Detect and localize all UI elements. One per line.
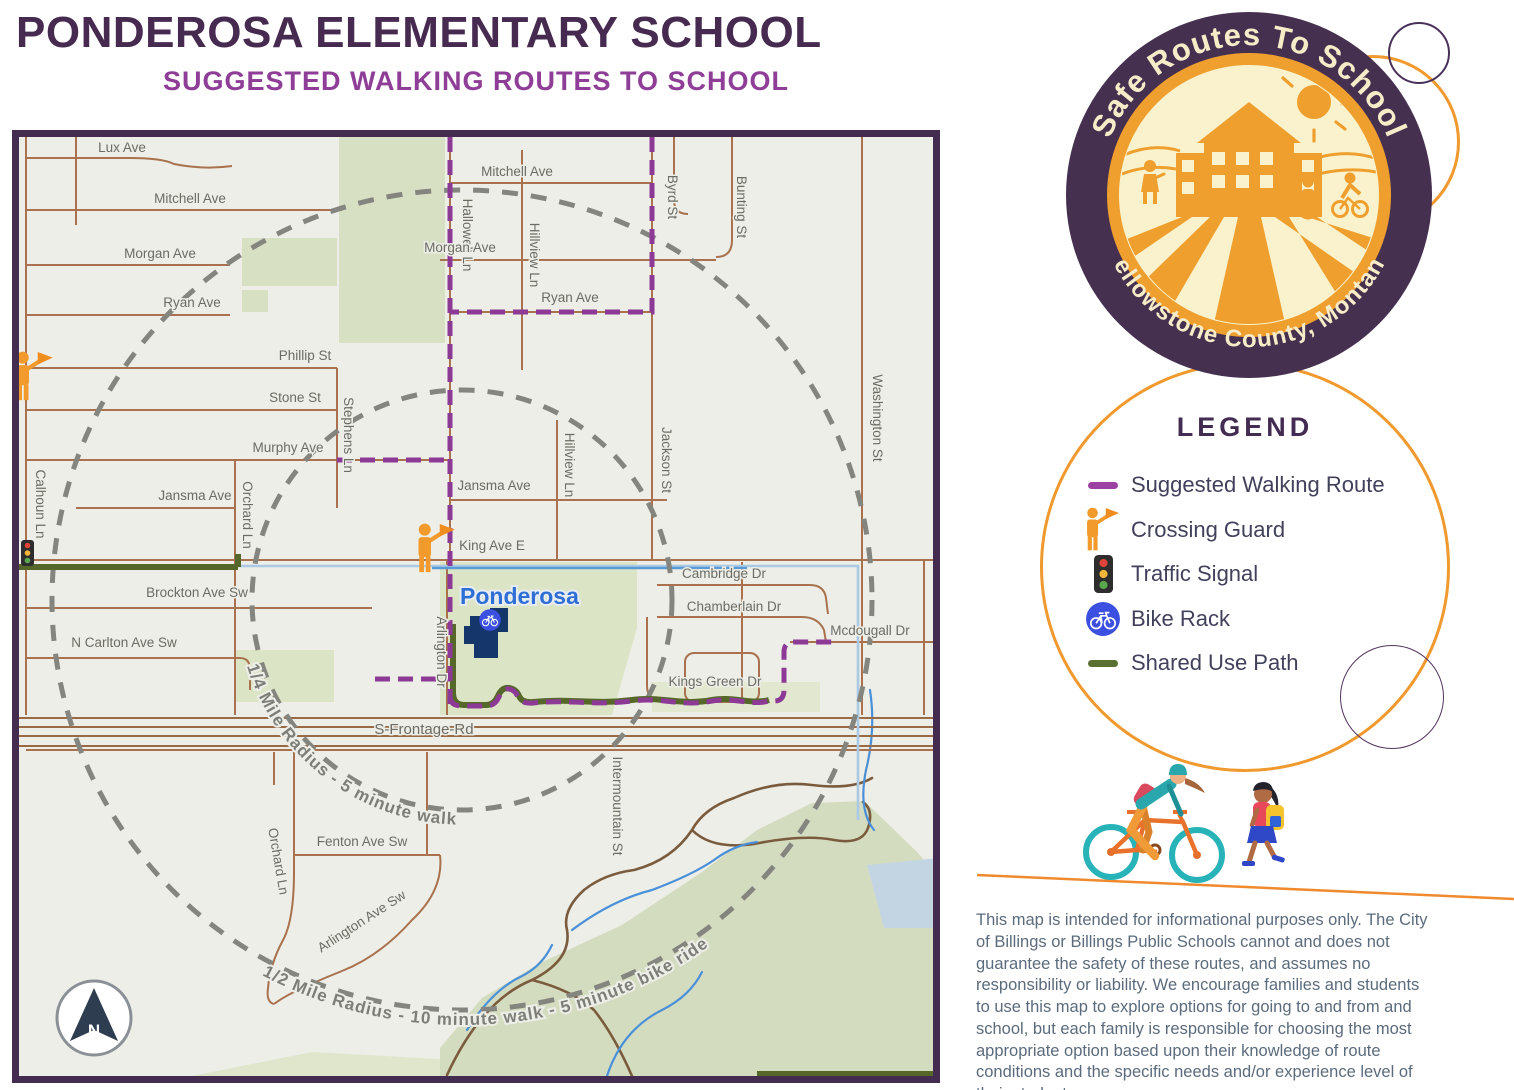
- street-label: Lux Ave: [98, 140, 146, 155]
- street-label: Fenton Ave Sw: [317, 834, 408, 849]
- street-label: Jansma Ave: [158, 488, 231, 503]
- street-label: Stephens Ln: [341, 397, 356, 473]
- legend-row-bike-rack: Bike Rack: [1075, 597, 1415, 642]
- street-label: N Carlton Ave Sw: [71, 635, 177, 650]
- svg-text:N: N: [88, 1021, 100, 1040]
- street-label: King Ave E: [459, 538, 525, 553]
- street-label: Chamberlain Dr: [687, 599, 782, 614]
- crossing-guard-icon: [1084, 508, 1122, 552]
- traffic-signal-icon: [21, 540, 34, 566]
- page-title: PONDEROSA ELEMENTARY SCHOOL: [16, 8, 936, 58]
- cyclist-figure: [1086, 764, 1222, 880]
- street-label: Arlington Dr: [434, 616, 449, 688]
- street-label: Ryan Ave: [163, 295, 221, 310]
- walking-routes-map: Lux Ave Mitchell Ave Morgan Ave Ryan Ave…: [12, 130, 940, 1083]
- walker-figure: [1242, 782, 1285, 866]
- street-label: Washington St: [870, 374, 885, 462]
- kids-illustration: [975, 752, 1514, 905]
- street-label: Kings Green Dr: [668, 674, 762, 689]
- bike-rack-icon: [1085, 601, 1121, 637]
- page-subtitle: SUGGESTED WALKING ROUTES TO SCHOOL: [16, 66, 936, 97]
- header: PONDEROSA ELEMENTARY SCHOOL SUGGESTED WA…: [16, 8, 936, 97]
- disclaimer-text: This map is intended for informational p…: [976, 910, 1431, 1090]
- street-label: Mcdougall Dr: [830, 623, 910, 638]
- street-label: Jansma Ave: [457, 478, 530, 493]
- street-label: Phillip St: [279, 348, 332, 363]
- flyer-page: PONDEROSA ELEMENTARY SCHOOL SUGGESTED WA…: [0, 0, 1514, 1090]
- north-arrow: N: [57, 981, 131, 1055]
- school-label: Ponderosa: [460, 583, 579, 609]
- street-label: Jackson St: [659, 427, 674, 493]
- street-label: Brockton Ave Sw: [146, 585, 248, 600]
- street-label: Mitchell Ave: [154, 191, 226, 206]
- traffic-signal-icon: [1094, 555, 1113, 593]
- street-label: Morgan Ave: [424, 240, 496, 255]
- street-label: Murphy Ave: [252, 440, 323, 455]
- legend-title: LEGEND: [1075, 412, 1415, 443]
- street-label: Stone St: [269, 390, 321, 405]
- street-label: Cambridge Dr: [682, 566, 767, 581]
- street-label: Intermountain St: [610, 756, 625, 855]
- safe-routes-badge: Safe Routes To School Yellowstone County…: [1052, 2, 1452, 392]
- legend-row-shared-use-path: Shared Use Path: [1075, 641, 1415, 686]
- street-label: Orchard Ln: [240, 481, 255, 549]
- street-label: Hillview Ln: [562, 433, 577, 498]
- ground-line: [977, 875, 1514, 899]
- street-label: Ryan Ave: [541, 290, 599, 305]
- street-label: Hillview Ln: [527, 223, 542, 288]
- street-label: Hallowell Ln: [460, 199, 475, 272]
- legend: LEGEND Suggested Walking Route Crossing …: [1075, 412, 1415, 686]
- street-label: S-Frontage-Rd: [374, 721, 473, 738]
- legend-row-walking-route: Suggested Walking Route: [1075, 463, 1415, 508]
- street-label: Mitchell Ave: [481, 164, 553, 179]
- street-label: Calhoun Ln: [33, 469, 48, 538]
- street-label: Morgan Ave: [124, 246, 196, 261]
- walking-route-dash-icon: [1088, 482, 1118, 489]
- bike-rack-icon: [479, 609, 501, 631]
- legend-row-crossing-guard: Crossing Guard: [1075, 508, 1415, 553]
- legend-row-traffic-signal: Traffic Signal: [1075, 552, 1415, 597]
- street-label: Bunting St: [734, 176, 749, 239]
- street-label: Byrd St: [665, 175, 680, 220]
- shared-use-path-dash-icon: [1088, 660, 1118, 667]
